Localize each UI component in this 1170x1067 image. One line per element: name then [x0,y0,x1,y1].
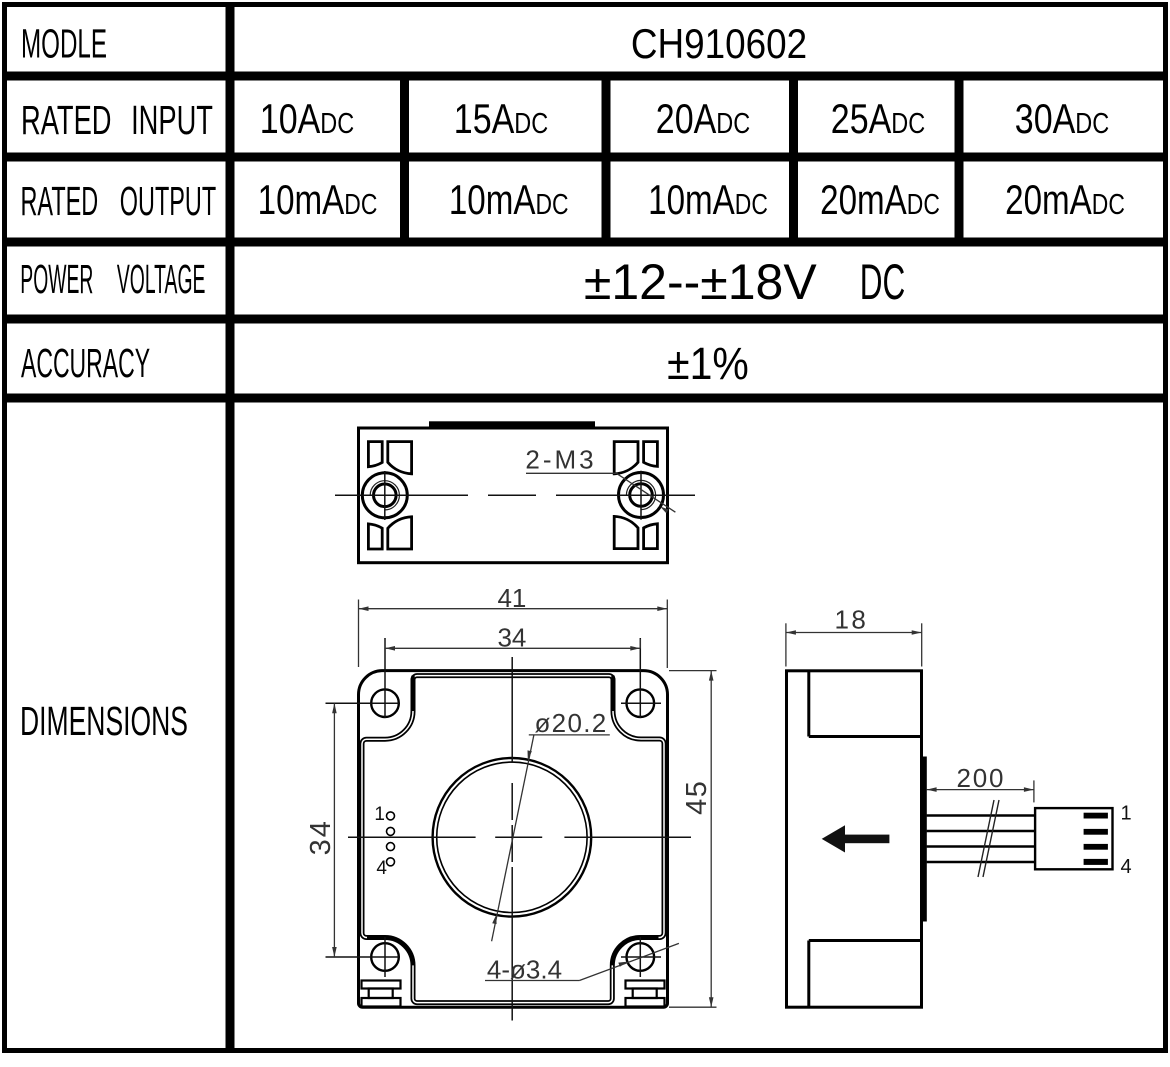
svg-text:RATED INPUT: RATED INPUT [21,98,213,144]
svg-text:1: 1 [1121,803,1132,825]
svg-text:DC: DC [860,254,905,310]
svg-text:1: 1 [374,804,385,825]
svg-text:4: 4 [376,858,387,879]
svg-text:4: 4 [1121,856,1132,878]
svg-text:±1%: ±1% [667,339,749,389]
svg-text:45: 45 [681,780,713,815]
svg-text:CH910602: CH910602 [631,21,807,68]
svg-text:2-M3: 2-M3 [525,445,596,475]
svg-text:POWER VOLTAGE: POWER VOLTAGE [20,256,205,302]
svg-text:18: 18 [834,605,868,635]
svg-text:DIMENSIONS: DIMENSIONS [20,699,188,744]
svg-text:ACCURACY: ACCURACY [21,341,150,387]
svg-text:±12--±18V: ±12--±18V [584,254,817,310]
svg-text:RATED OUTPUT: RATED OUTPUT [21,179,217,224]
svg-text:41: 41 [497,583,526,613]
svg-text:200: 200 [957,763,1006,793]
svg-text:ø20.2: ø20.2 [535,708,608,738]
svg-text:34: 34 [497,623,526,653]
svg-text:MODLE: MODLE [21,22,107,67]
svg-text:34: 34 [305,819,337,855]
